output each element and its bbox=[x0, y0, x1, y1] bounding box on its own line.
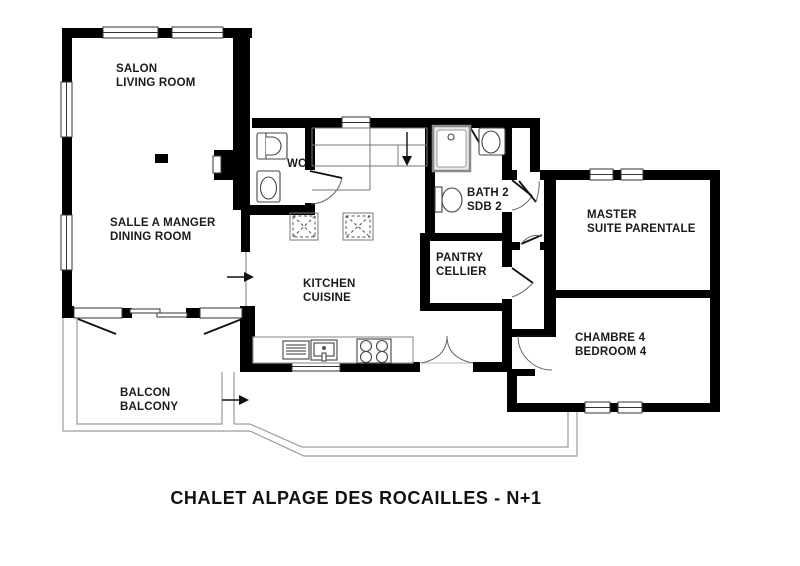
label-salon-fr: SALON bbox=[116, 63, 157, 75]
label-wc: WC bbox=[287, 158, 307, 170]
label-bedroom4-fr: CHAMBRE 4 bbox=[575, 332, 646, 344]
kitchen-sink bbox=[311, 340, 337, 361]
floor-plan-drawing: SALON LIVING ROOM SALLE A MANGER DINING … bbox=[0, 0, 800, 566]
skylights bbox=[290, 213, 373, 240]
bath2-toilet bbox=[435, 187, 462, 212]
balcony-door-leaf bbox=[204, 319, 242, 334]
window bbox=[103, 27, 158, 38]
wc-fixtures bbox=[257, 133, 287, 202]
window bbox=[585, 402, 610, 413]
dining-passage-arrow-icon bbox=[227, 272, 254, 282]
kitchen-french-door bbox=[421, 336, 473, 363]
label-bath2-en: BATH 2 bbox=[467, 187, 509, 199]
balcony-outline bbox=[63, 318, 250, 431]
label-balcony-en: BALCONY bbox=[120, 401, 178, 413]
window bbox=[342, 117, 370, 128]
label-pantry-fr: CELLIER bbox=[436, 266, 487, 278]
label-kitchen-en: KITCHEN bbox=[303, 278, 356, 290]
wc-door bbox=[310, 171, 342, 204]
stove bbox=[357, 339, 391, 363]
fireplace bbox=[155, 154, 221, 173]
sliding-door-panel bbox=[130, 309, 160, 313]
floor-plan-page: SALON LIVING ROOM SALLE A MANGER DINING … bbox=[0, 0, 800, 566]
dishwasher bbox=[283, 341, 309, 359]
balcony-door-frame bbox=[200, 308, 242, 318]
window bbox=[621, 169, 643, 180]
skylight-icon bbox=[290, 213, 318, 240]
sliding-door-panel bbox=[157, 313, 187, 317]
label-balcony-fr: BALCON bbox=[120, 387, 170, 399]
skylight-icon bbox=[343, 213, 373, 240]
window bbox=[590, 169, 613, 180]
label-master-en: MASTER bbox=[587, 209, 637, 221]
label-master-fr: SUITE PARENTALE bbox=[587, 223, 696, 235]
master-door bbox=[519, 181, 539, 202]
label-kitchen-fr: CUISINE bbox=[303, 292, 351, 304]
room-master bbox=[558, 180, 710, 290]
wc-sink bbox=[257, 133, 287, 159]
wc-toilet bbox=[257, 171, 280, 202]
balcony-passage-arrow-icon bbox=[222, 395, 249, 405]
label-pantry-en: PANTRY bbox=[436, 252, 483, 264]
kitchen-counter bbox=[253, 337, 413, 363]
bath2-sink bbox=[479, 128, 505, 155]
label-bath2-fr: SDB 2 bbox=[467, 201, 502, 213]
window bbox=[172, 27, 223, 38]
labels: SALON LIVING ROOM SALLE A MANGER DINING … bbox=[110, 63, 696, 508]
walkway-outline bbox=[250, 412, 577, 456]
bedroom4-door bbox=[518, 336, 552, 370]
stairs bbox=[312, 128, 427, 190]
label-salon-en: LIVING ROOM bbox=[116, 77, 196, 89]
label-dining-fr: SALLE A MANGER bbox=[110, 217, 216, 229]
pantry-door bbox=[512, 268, 533, 297]
page-title: CHALET ALPAGE DES ROCAILLES - N+1 bbox=[170, 488, 541, 508]
bath2-fixtures bbox=[433, 126, 505, 212]
shower bbox=[433, 126, 470, 171]
window bbox=[61, 82, 72, 137]
stairs-down-arrow-icon bbox=[402, 132, 412, 166]
balcony-door-leaf bbox=[78, 319, 116, 334]
room-living bbox=[72, 38, 232, 153]
balcony-door-frame bbox=[74, 308, 122, 318]
label-dining-en: DINING ROOM bbox=[110, 231, 191, 243]
window bbox=[61, 215, 72, 270]
label-bedroom4-en: BEDROOM 4 bbox=[575, 346, 647, 358]
window bbox=[618, 402, 642, 413]
closet-door bbox=[521, 235, 542, 244]
